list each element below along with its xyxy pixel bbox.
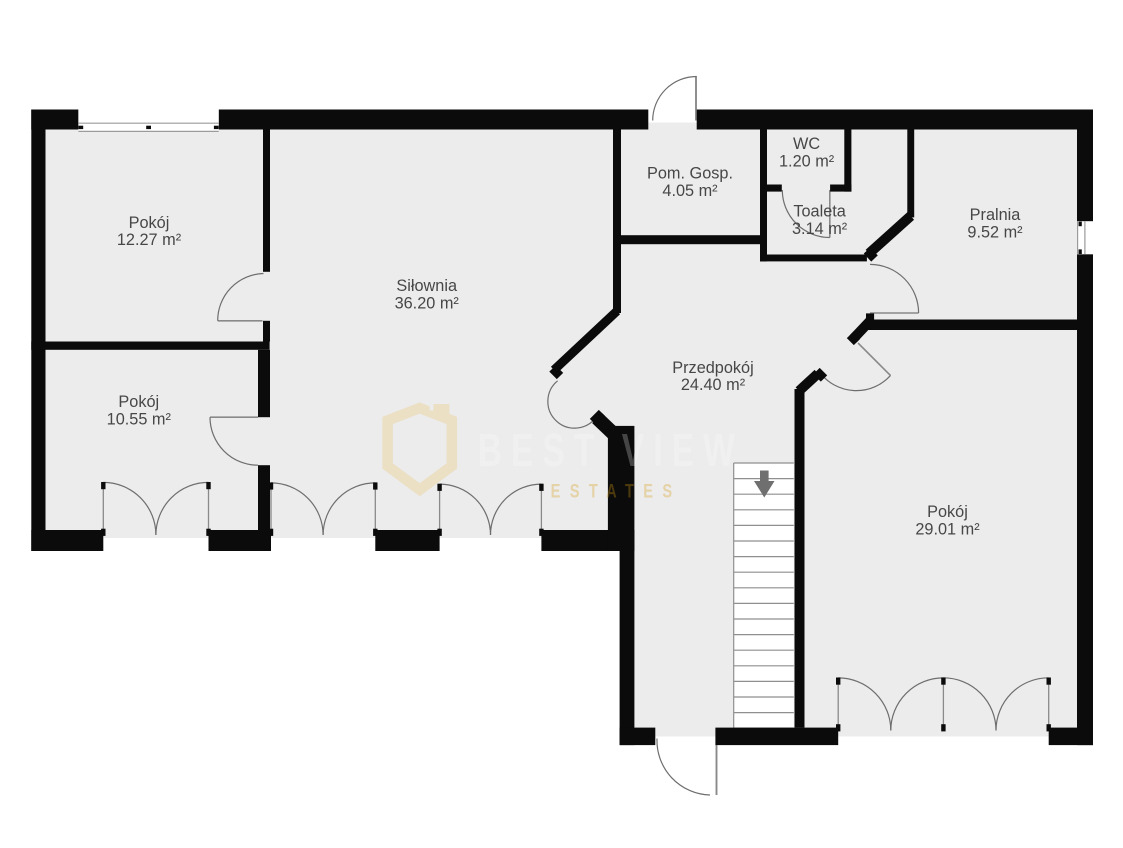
svg-text:4.05 m²: 4.05 m² — [662, 182, 718, 200]
svg-text:9.52 m²: 9.52 m² — [967, 224, 1023, 242]
svg-text:Pokój: Pokój — [927, 503, 968, 521]
svg-text:12.27 m²: 12.27 m² — [117, 231, 182, 249]
svg-text:1.20 m²: 1.20 m² — [779, 153, 835, 171]
svg-text:10.55 m²: 10.55 m² — [107, 410, 172, 428]
svg-text:24.40 m²: 24.40 m² — [681, 376, 746, 394]
svg-text:Pokój: Pokój — [118, 393, 159, 411]
svg-text:Pokój: Pokój — [129, 214, 170, 232]
svg-text:Pom. Gosp.: Pom. Gosp. — [647, 165, 733, 183]
svg-text:3.14 m²: 3.14 m² — [792, 220, 848, 238]
svg-text:36.20 m²: 36.20 m² — [395, 295, 460, 313]
svg-text:Toaleta: Toaleta — [793, 203, 846, 221]
svg-text:29.01 m²: 29.01 m² — [915, 520, 980, 538]
svg-text:Przedpokój: Przedpokój — [672, 359, 753, 377]
svg-text:Pralnia: Pralnia — [970, 206, 1022, 224]
svg-text:Siłownia: Siłownia — [396, 277, 458, 295]
svg-text:WC: WC — [793, 135, 820, 153]
